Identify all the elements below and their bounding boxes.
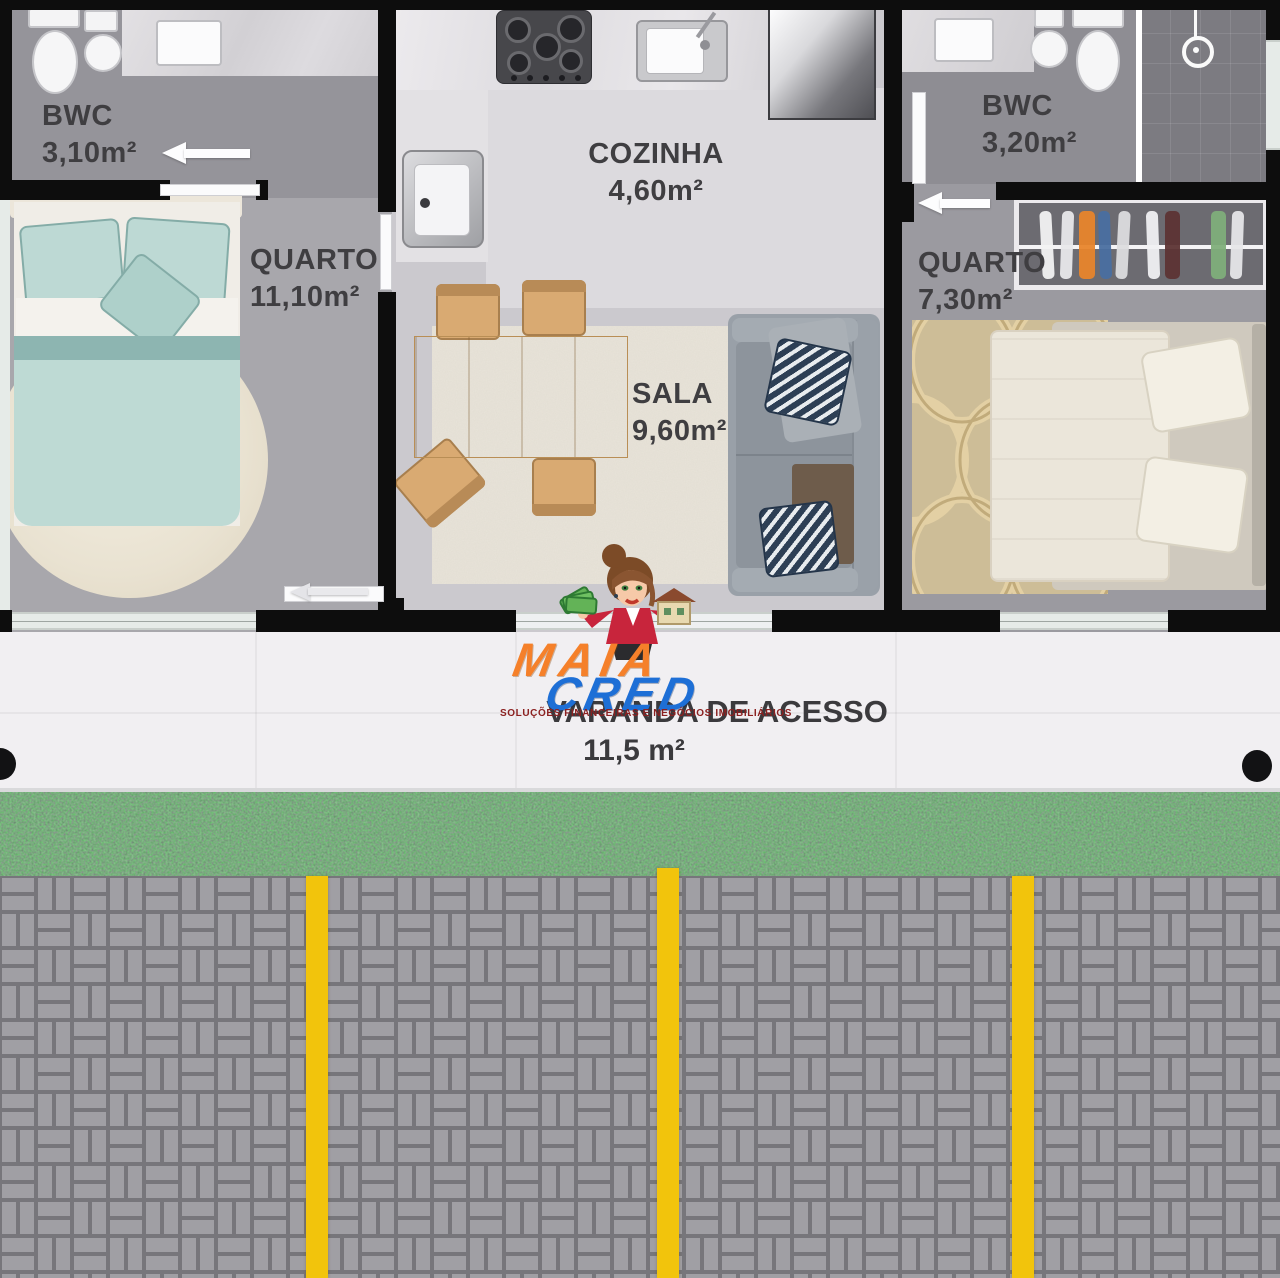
wall-bathroom-left xyxy=(0,180,170,200)
room-area: 3,20m² xyxy=(982,125,1077,162)
hanging-clothes xyxy=(1115,211,1131,280)
cooktop-knob xyxy=(511,75,517,81)
room-name: BWC xyxy=(42,98,137,135)
parking-line xyxy=(306,876,328,1278)
room-label-quarto-left: QUARTO 11,10m² xyxy=(250,242,378,316)
wall-divider-left xyxy=(378,0,396,212)
pillow xyxy=(1135,455,1250,555)
veranda-area: 11,5 m² xyxy=(583,734,685,768)
chevron-pillow xyxy=(763,337,853,427)
tank-drain xyxy=(420,198,430,208)
door-jamb xyxy=(384,598,404,612)
dining-table xyxy=(414,336,628,458)
burner-icon xyxy=(505,17,531,43)
sofa-cushion-gap xyxy=(736,454,852,456)
wall-exterior-bottom xyxy=(772,610,1000,632)
burner-icon xyxy=(557,15,585,43)
hanging-clothes xyxy=(1165,211,1180,279)
dining-chair xyxy=(522,280,586,336)
kitchen-sink xyxy=(636,20,728,82)
chair-back xyxy=(522,280,586,292)
toilet-tank xyxy=(28,8,80,28)
door-bedroom-left xyxy=(380,214,392,290)
room-area: 4,60m² xyxy=(556,173,756,210)
cooktop-knob xyxy=(527,75,533,81)
floorplan-image: BWC 3,10m² QUARTO 11,10m² COZINHA 4,60m²… xyxy=(0,0,1280,1278)
burner-icon xyxy=(533,33,561,61)
room-name: QUARTO xyxy=(250,242,378,279)
wall-corner xyxy=(0,610,12,632)
hanging-clothes xyxy=(1230,211,1244,279)
shower-head-icon xyxy=(1182,36,1214,68)
chevron-pillow xyxy=(758,500,840,578)
refrigerator xyxy=(768,6,876,120)
sink-bowl xyxy=(1030,30,1068,68)
paver-driveway xyxy=(0,876,1280,1278)
toilet-bowl xyxy=(32,30,78,94)
cooktop xyxy=(496,10,592,84)
room-label-sala: SALA 9,60m² xyxy=(632,376,727,450)
wall-exterior-bottom xyxy=(268,610,516,632)
window-bedroom-right xyxy=(1000,612,1168,630)
cooktop-knob xyxy=(559,75,565,81)
vanity-basin xyxy=(934,18,994,62)
wall-corner xyxy=(884,182,914,222)
faucet xyxy=(700,40,710,50)
wardrobe-rail xyxy=(1019,245,1263,249)
hanging-clothes xyxy=(1060,211,1074,279)
wall-divider-right xyxy=(884,0,902,610)
window-left xyxy=(0,198,10,612)
wall-divider-left-lower xyxy=(378,292,396,610)
room-label-bwc-left: BWC 3,10m² xyxy=(42,98,137,172)
grass-strip xyxy=(0,792,1280,876)
room-name: QUARTO xyxy=(918,245,1046,282)
pillow xyxy=(1140,336,1253,434)
room-name: COZINHA xyxy=(556,136,756,173)
sofa xyxy=(728,314,880,596)
window-right xyxy=(1266,40,1280,150)
wall-exterior-bottom xyxy=(1168,610,1280,632)
wall-bathroom-right xyxy=(996,182,1280,200)
room-area: 11,10m² xyxy=(250,279,378,316)
wall-exterior-left xyxy=(0,0,12,198)
burner-icon xyxy=(507,51,531,75)
laundry-tank xyxy=(402,150,484,248)
vanity-basin xyxy=(156,20,222,66)
room-label-cozinha: COZINHA 4,60m² xyxy=(556,136,756,210)
hanging-clothes xyxy=(1211,211,1226,279)
room-area: 3,10m² xyxy=(42,135,137,172)
window-bedroom-left xyxy=(12,612,256,630)
wall-exterior-top xyxy=(0,0,1280,10)
hanging-clothes xyxy=(1146,211,1160,279)
cooktop-knob xyxy=(543,75,549,81)
room-name: BWC xyxy=(982,88,1077,125)
veranda-joint xyxy=(895,632,897,788)
toilet-bowl xyxy=(1076,30,1120,92)
parking-line xyxy=(657,868,679,1278)
shower-glass-divider xyxy=(1136,0,1142,182)
room-area: 7,30m² xyxy=(918,282,1046,319)
wall-jamb xyxy=(256,610,268,632)
cooktop-knob xyxy=(575,75,581,81)
room-area: 9,60m² xyxy=(632,413,727,450)
duvet xyxy=(14,360,240,526)
sink-bowl xyxy=(84,34,122,72)
shower-floor xyxy=(1140,0,1266,184)
parking-line xyxy=(1012,876,1034,1278)
burner-icon xyxy=(559,49,583,73)
door-bathroom-left xyxy=(160,184,260,196)
room-label-quarto-right: QUARTO 7,30m² xyxy=(918,245,1046,319)
dining-chair xyxy=(532,458,596,516)
pillar xyxy=(1242,750,1272,782)
sink-pedestal xyxy=(84,10,118,32)
hanging-clothes xyxy=(1098,211,1112,279)
sink-pedestal xyxy=(1034,8,1064,28)
bed-headboard xyxy=(1252,324,1266,586)
room-label-bwc-right: BWC 3,20m² xyxy=(982,88,1077,162)
chair-back xyxy=(436,284,500,296)
sofa-backrest xyxy=(852,320,878,590)
chair-back xyxy=(532,504,596,516)
hanging-clothes xyxy=(1079,211,1095,279)
brand-tagline: SOLUÇÕES FINANCEIRAS E NEGÓCIOS IMOBILIÁ… xyxy=(500,708,792,719)
room-name: SALA xyxy=(632,376,727,413)
veranda-joint xyxy=(255,632,257,788)
dining-chair xyxy=(436,284,500,340)
door-bathroom-right xyxy=(912,92,926,184)
wardrobe xyxy=(1014,198,1268,290)
